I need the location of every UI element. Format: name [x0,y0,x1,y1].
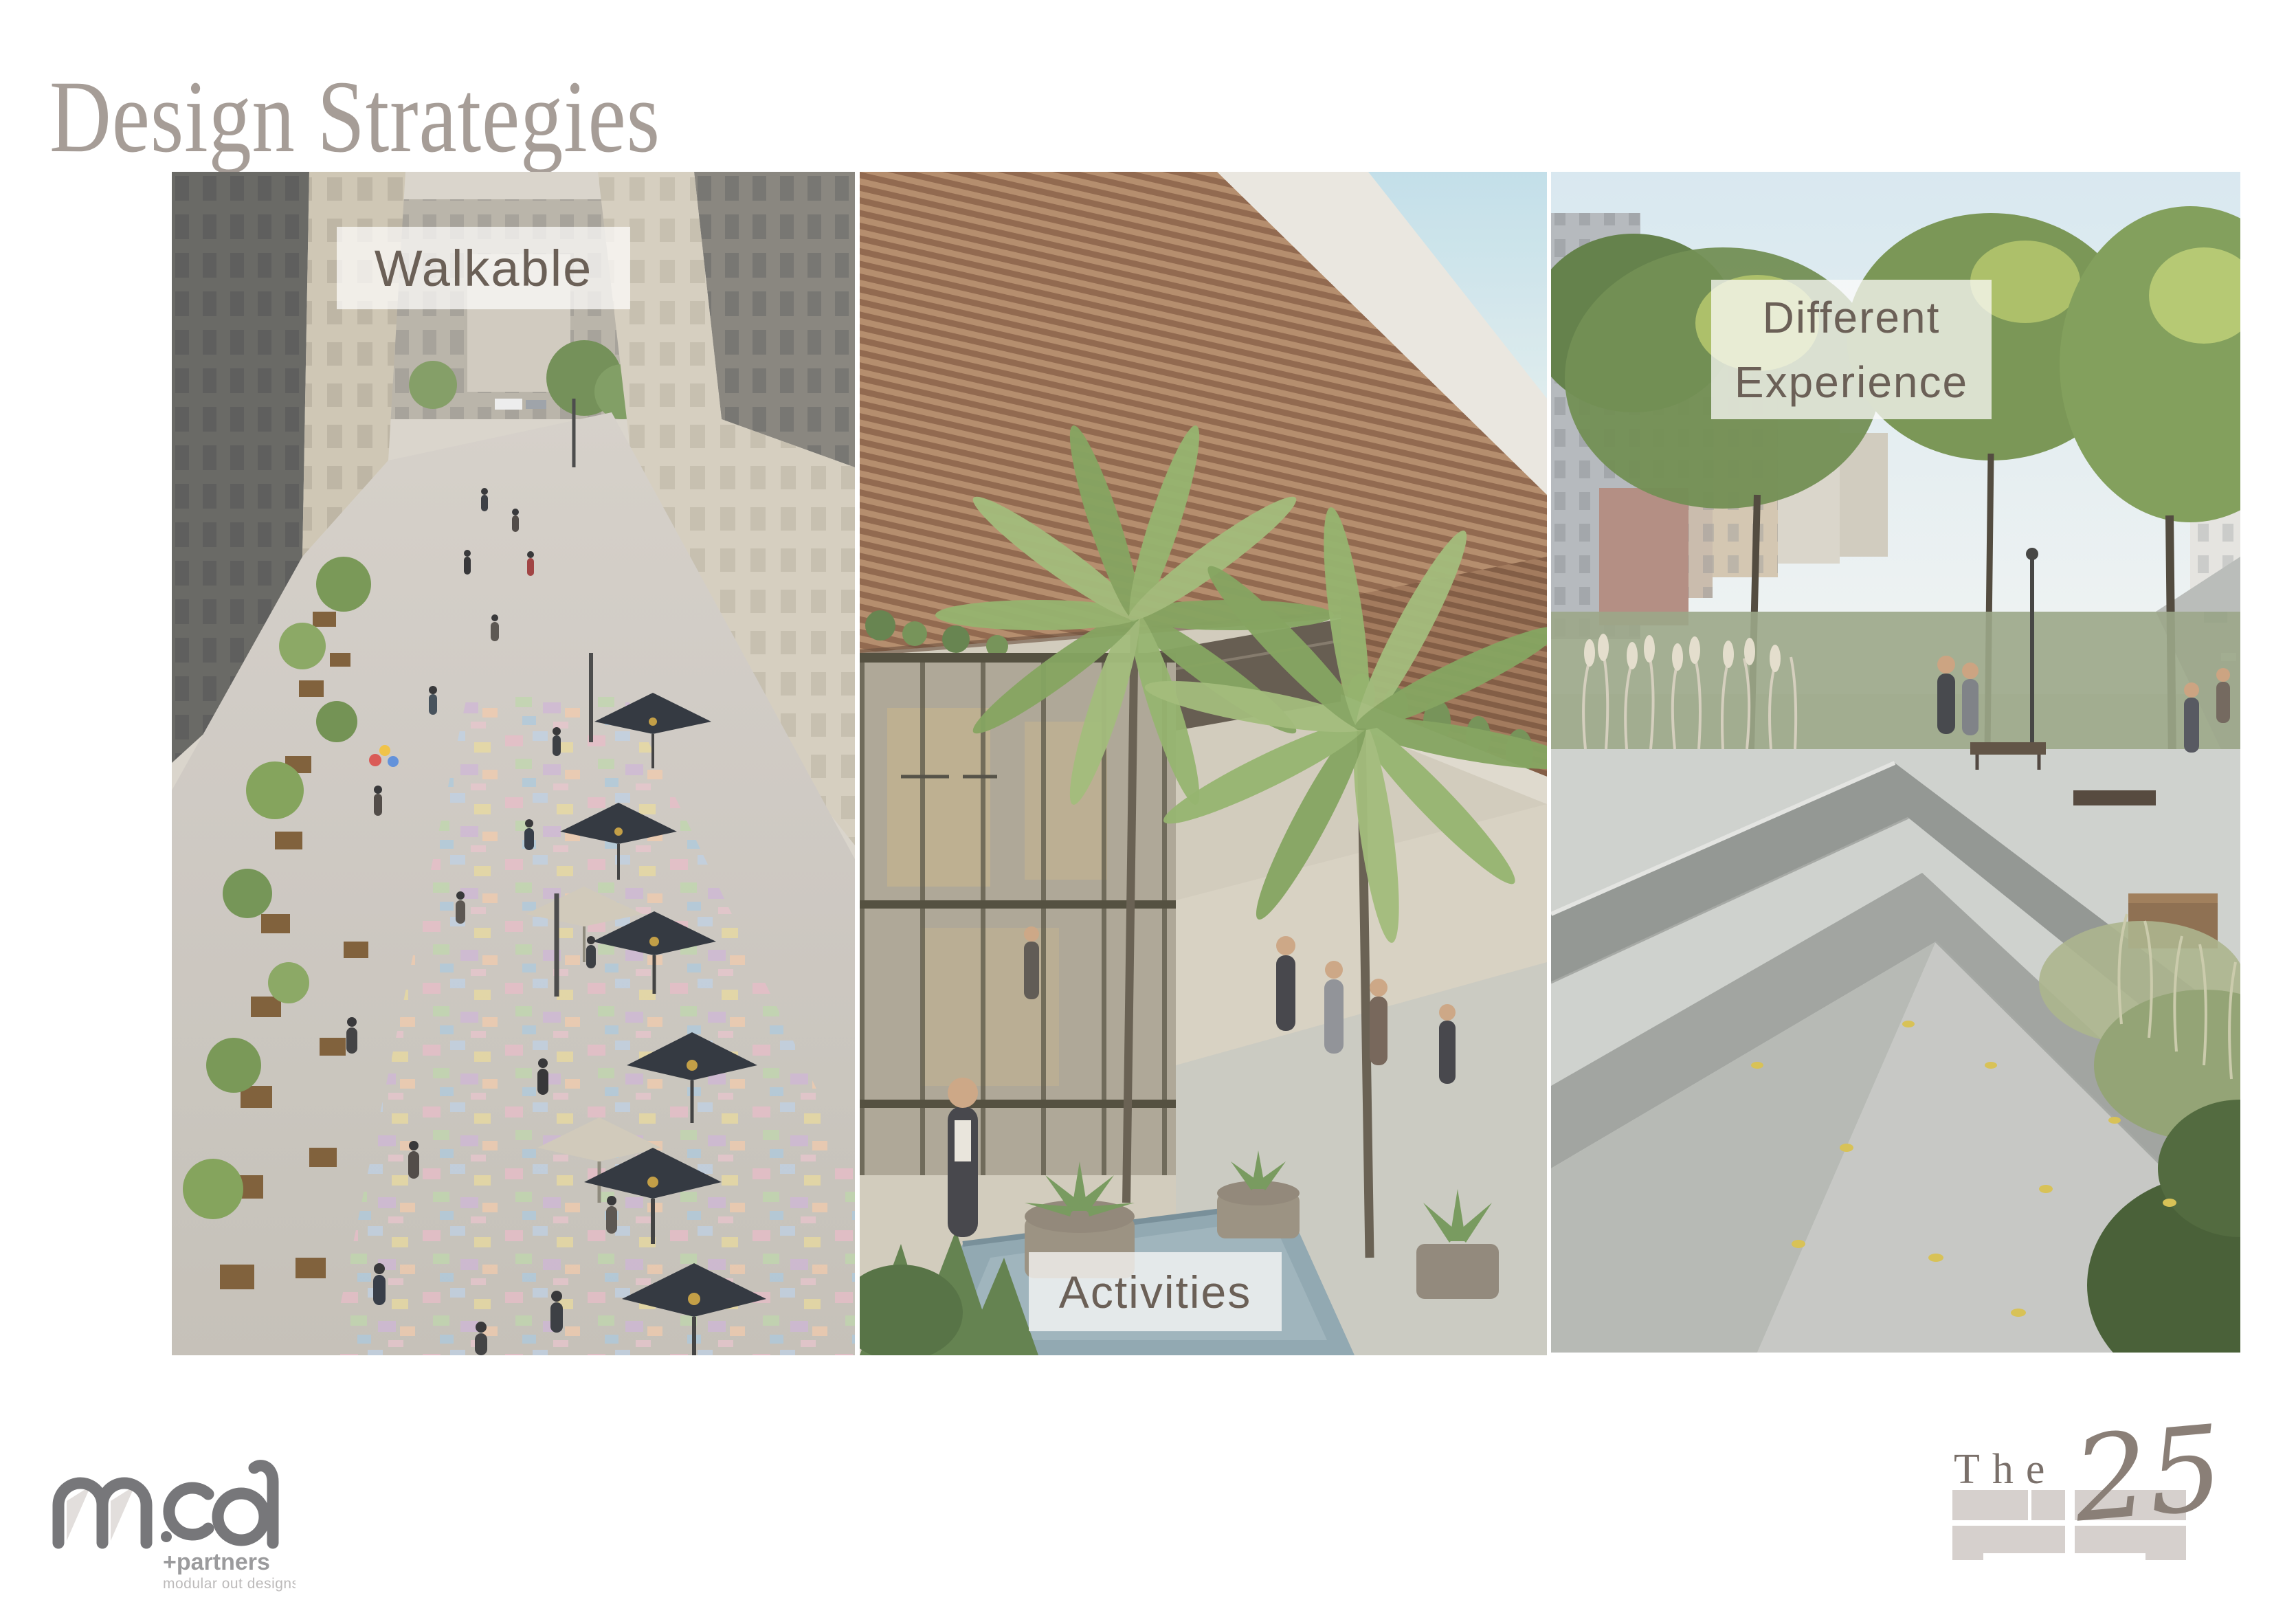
label-activities-text: Activities [1059,1266,1251,1318]
slide: Design Strategies [0,0,2296,1624]
mcd-partners-logo: +partners modular out designs [48,1451,296,1596]
label-different-line1: Different [1763,285,1941,350]
page-title: Design Strategies [49,65,660,168]
photo-walkable-street [172,172,855,1355]
mcd-wordmark-icon [58,1466,273,1543]
label-walkable-text: Walkable [375,239,593,298]
the25-word: The [1954,1446,2057,1493]
the25-number: 25 [2068,1423,2229,1549]
the-25-logo: The 25 [1938,1423,2268,1615]
label-walkable: Walkable [337,227,630,309]
mcd-partners-text: +partners [163,1549,270,1575]
label-different-line2: Experience [1735,350,1968,414]
label-activities: Activities [1029,1252,1282,1331]
photo-activities-plaza [860,172,1547,1355]
mcd-tagline-text: modular out designs [163,1576,296,1592]
label-different-experience: Different Experience [1711,280,1992,419]
